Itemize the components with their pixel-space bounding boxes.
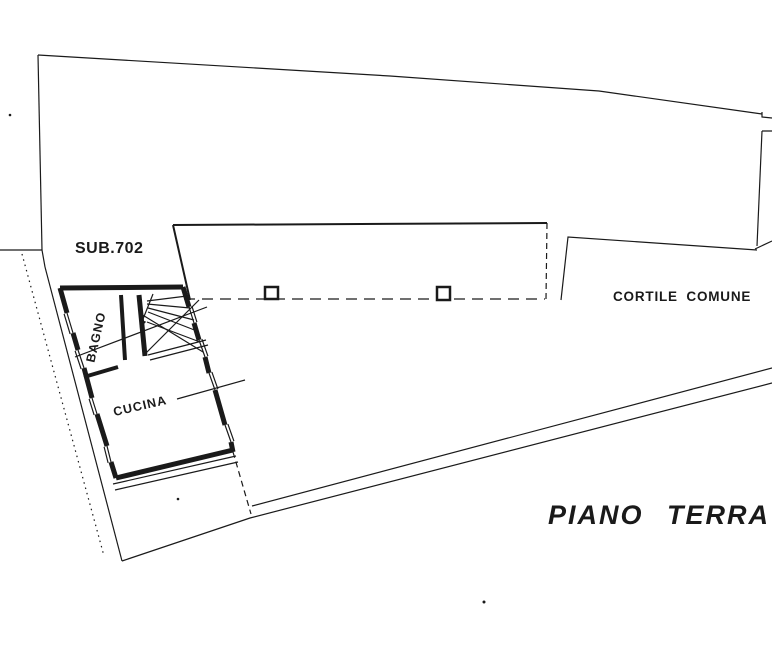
- unit-bottom-wall: [116, 450, 233, 478]
- leader-line-cucina: [177, 380, 245, 399]
- bagno-south-wall: [84, 367, 118, 377]
- courtyard-right-edge: [546, 223, 547, 299]
- window: [64, 313, 73, 334]
- parcel-right-edge: [757, 131, 762, 246]
- courtyard-pillar-2: [437, 287, 450, 300]
- courtyard: [173, 223, 547, 300]
- courtyard-top-edge: [173, 223, 547, 225]
- terrace-right-dash-line: [233, 452, 251, 514]
- speck: [177, 498, 180, 501]
- left-connector-line: [0, 250, 45, 267]
- window: [89, 398, 97, 415]
- floor-plan-page: SUB.702 CORTILE COMUNE BAGNO CUCINA PIAN…: [0, 0, 772, 672]
- window: [209, 372, 218, 390]
- window: [225, 424, 234, 442]
- parcel-boundary: [0, 55, 772, 300]
- label-cortile-comune: CORTILE COMUNE: [613, 289, 751, 304]
- window: [75, 350, 84, 369]
- speck: [9, 114, 12, 117]
- west-boundary-line: [45, 267, 122, 561]
- label-sub702: SUB.702: [75, 240, 143, 257]
- window: [104, 446, 111, 463]
- unit-top-wall: [60, 287, 183, 288]
- label-piano-terra: PIANO TERRA: [548, 500, 770, 530]
- apartment-unit: [60, 287, 238, 490]
- courtyard-pillar-1: [265, 287, 278, 299]
- label-bagno: BAGNO: [83, 310, 108, 363]
- scan-specks: [9, 114, 486, 604]
- parcel-right-notch: [762, 112, 772, 131]
- speck: [483, 601, 486, 604]
- south-upper-diagonal: [252, 368, 772, 506]
- label-cucina: CUCINA: [112, 393, 168, 419]
- bagno-stair-partition: [121, 295, 125, 360]
- terrace-step-line-1: [113, 456, 236, 484]
- parcel-top-edge: [38, 55, 762, 114]
- parcel-left-edge: [38, 55, 42, 250]
- floor-plan-drawing: SUB.702 CORTILE COMUNE BAGNO CUCINA PIAN…: [0, 0, 772, 672]
- stair-treads: [147, 296, 200, 342]
